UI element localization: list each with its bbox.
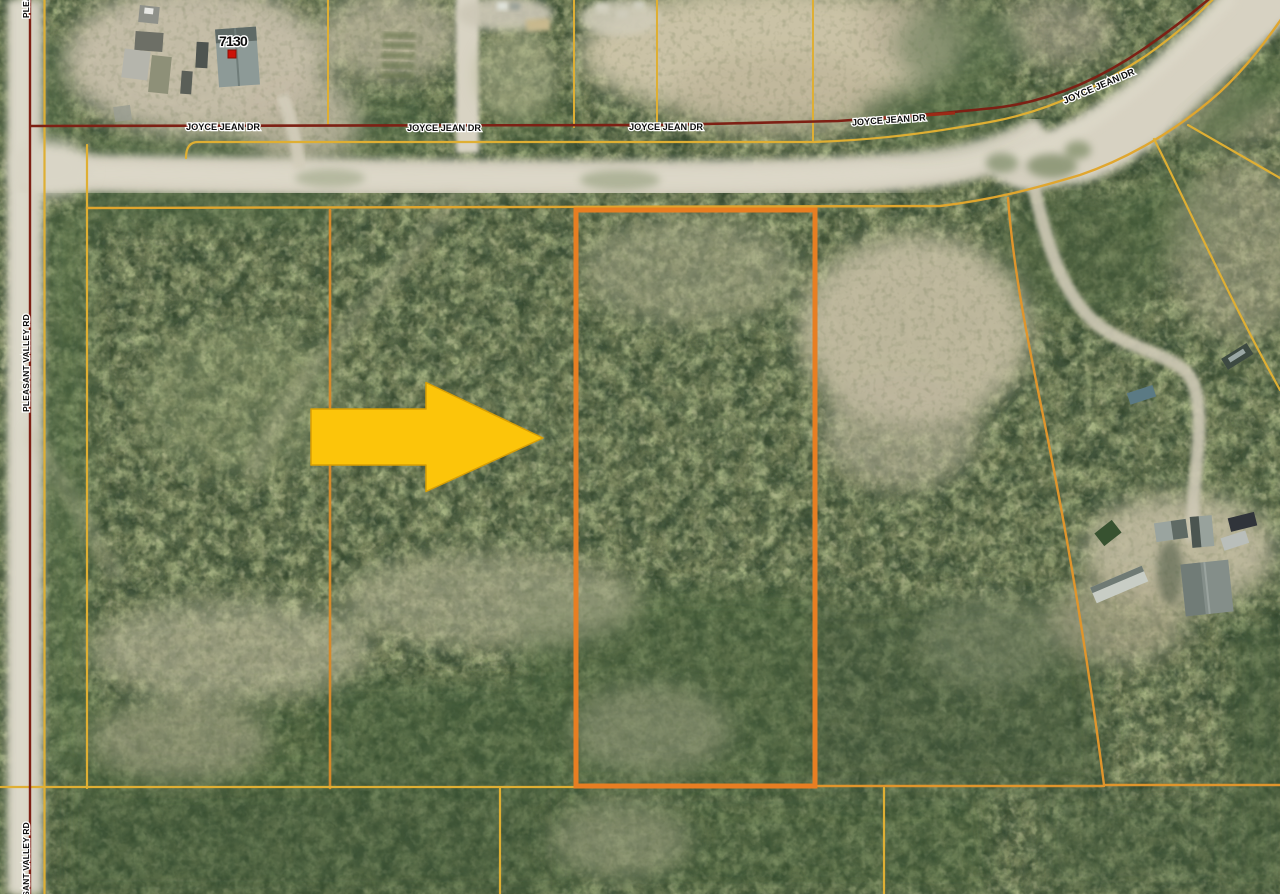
svg-text:PLEASANT VALLEY RD: PLEASANT VALLEY RD xyxy=(21,822,31,894)
svg-text:PLEASANT VALLEY RD: PLEASANT VALLEY RD xyxy=(21,0,31,18)
svg-text:JOYCE JEAN DR: JOYCE JEAN DR xyxy=(407,123,481,133)
svg-text:JOYCE JEAN DR: JOYCE JEAN DR xyxy=(629,122,703,132)
svg-text:7130: 7130 xyxy=(219,33,248,49)
svg-text:PLEASANT VALLEY RD: PLEASANT VALLEY RD xyxy=(21,314,31,412)
svg-text:JOYCE JEAN DR: JOYCE JEAN DR xyxy=(186,122,260,132)
